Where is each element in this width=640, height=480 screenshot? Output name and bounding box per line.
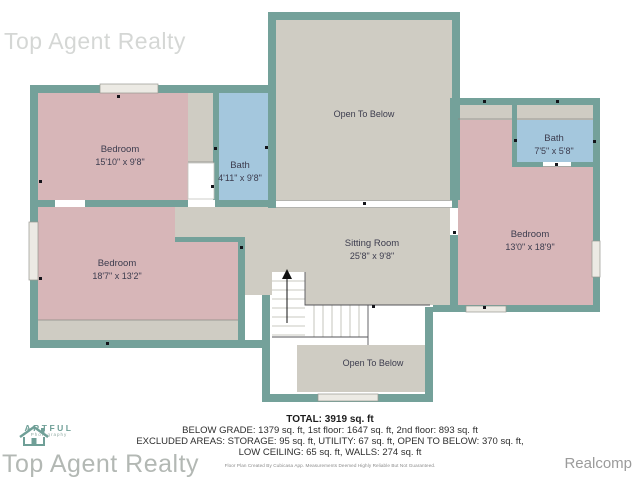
summary-disclaimer: Floor Plan Created By Cubicasa App. Meas… — [30, 463, 630, 468]
room-label-bedroom-2: Bedroom 18'7" x 13'2" — [92, 258, 141, 282]
summary-line-2: EXCLUDED AREAS: STORAGE: 95 sq. ft, UTIL… — [30, 437, 630, 448]
room-label-open-to-below-top: Open To Below — [334, 108, 395, 120]
room-label-bath-1: Bath 4'11" x 9'8" — [218, 160, 262, 184]
watermark-top-left: Top Agent Realty — [4, 28, 186, 55]
room-label-bedroom-3: Bedroom 13'0" x 18'9" — [505, 229, 554, 253]
summary-line-3: LOW CEILING: 65 sq. ft, WALLS: 274 sq. f… — [30, 448, 630, 459]
area-summary: TOTAL: 3919 sq. ft BELOW GRADE: 1379 sq.… — [30, 414, 630, 468]
floor-plan-screenshot: Open To Below Bedroom 15'10" x 9'8" Bath… — [0, 0, 640, 480]
room-label-open-to-below-bottom: Open To Below — [343, 357, 404, 369]
realcomp-mark: Realcomp — [564, 455, 632, 472]
room-label-bath-2: Bath 7'5" x 5'8" — [534, 133, 573, 157]
room-label-sitting-room: Sitting Room 25'8" x 9'8" — [345, 238, 399, 262]
room-label-bedroom-1: Bedroom 15'10" x 9'8" — [95, 144, 144, 168]
